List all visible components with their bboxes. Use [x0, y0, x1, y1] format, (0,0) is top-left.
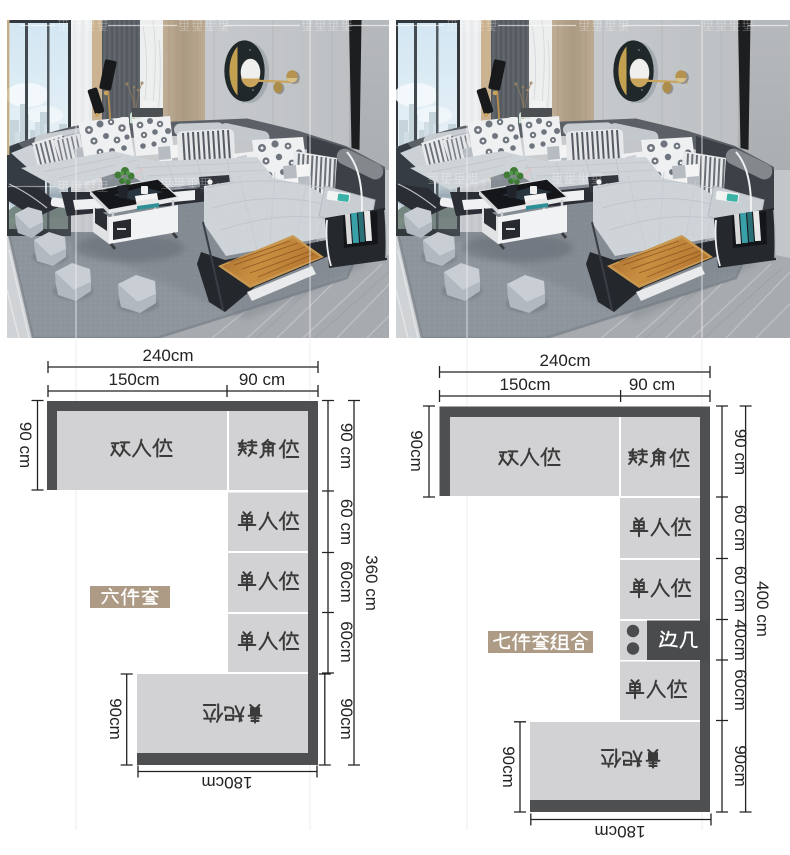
svg-text:90 cm: 90 cm [629, 375, 675, 394]
svg-text:60 cm: 60 cm [731, 566, 750, 612]
svg-text:360 cm: 360 cm [362, 555, 381, 611]
svg-text:90cm: 90cm [731, 745, 750, 787]
svg-text:90cm: 90cm [407, 430, 426, 472]
svg-text:60cm: 60cm [731, 669, 750, 711]
svg-text:90 cm: 90 cm [337, 423, 356, 469]
svg-text:90 cm: 90 cm [16, 422, 35, 468]
svg-text:240cm: 240cm [142, 346, 193, 365]
svg-text:60 cm: 60 cm [731, 505, 750, 551]
svg-text:60 cm: 60 cm [337, 499, 356, 545]
svg-text:180cm: 180cm [594, 822, 645, 841]
svg-text:60cm: 60cm [337, 621, 356, 663]
svg-text:400 cm: 400 cm [753, 581, 772, 637]
svg-text:90cm: 90cm [337, 698, 356, 740]
svg-text:60cm: 60cm [337, 561, 356, 603]
svg-text:150cm: 150cm [108, 370, 159, 389]
svg-text:180cm: 180cm [201, 773, 252, 792]
svg-text:90 cm: 90 cm [731, 429, 750, 475]
svg-text:240cm: 240cm [539, 351, 590, 370]
svg-text:90cm: 90cm [106, 698, 125, 740]
svg-text:90 cm: 90 cm [239, 370, 285, 389]
svg-text:90cm: 90cm [499, 746, 518, 788]
svg-text:150cm: 150cm [499, 375, 550, 394]
svg-text:40cm: 40cm [731, 619, 750, 661]
